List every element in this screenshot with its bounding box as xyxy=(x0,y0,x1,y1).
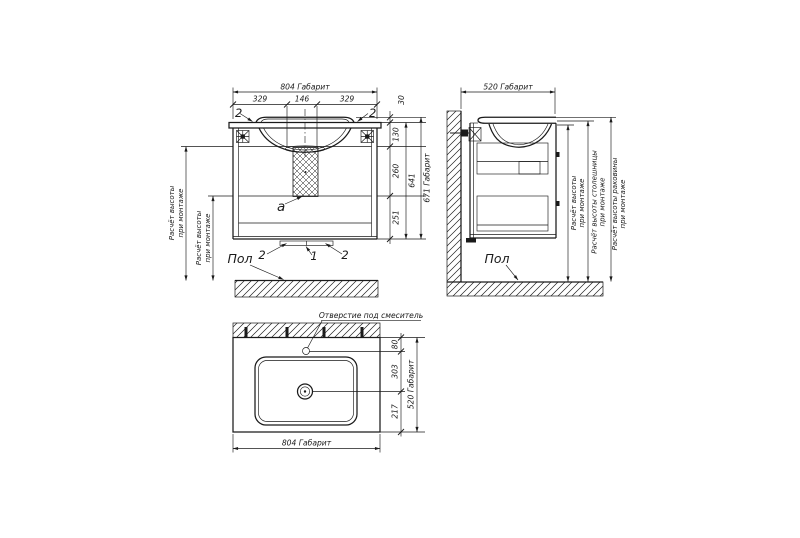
side-note-countertop-line1: Расчёт высоты столешницы xyxy=(591,150,599,254)
front-dim-center: 146 xyxy=(295,95,310,104)
basin-side-profile xyxy=(489,124,552,147)
front-callout-rail-right: 2 xyxy=(341,248,348,262)
upper-drawer xyxy=(477,143,548,174)
front-dim-left: 329 xyxy=(253,95,268,104)
front-view: 804 Габарит 329 146 329 2 2 xyxy=(168,83,432,298)
drawer-slide-tab xyxy=(556,152,560,157)
side-floor-hatch xyxy=(447,282,603,296)
front-dim-width: 804 Габарит xyxy=(280,83,330,92)
plan-dim-depth: 520 Габарит xyxy=(407,359,416,409)
side-dim-depth: 520 Габарит xyxy=(483,83,533,92)
front-label-siphon: a xyxy=(277,199,285,215)
vanity-drawing-svg: 804 Габарит 329 146 329 2 2 xyxy=(0,0,800,538)
front-dim-rim-height: 30 xyxy=(397,95,406,105)
side-note-height-line2: при монтаже xyxy=(578,179,586,228)
siphon-area xyxy=(293,148,318,197)
front-dim-body-height: 641 xyxy=(408,173,417,188)
wall-fixing-mark xyxy=(323,327,326,338)
front-note-mount-1-line2: при монтаже xyxy=(177,189,185,238)
side-note-basin-line2: при монтаже xyxy=(619,180,627,229)
plan-dim-drain-offset: 303 xyxy=(391,364,400,379)
front-callout-rail-center: 1 xyxy=(310,249,317,263)
technical-drawing-page: 804 Габарит 329 146 329 2 2 xyxy=(0,0,800,538)
mounting-rail xyxy=(280,241,333,246)
faucet-hole xyxy=(303,348,310,355)
side-note-basin-line1: Расчёт высоты раковины xyxy=(611,157,619,250)
side-cabinet-outline xyxy=(450,117,560,242)
front-callout-rail-left: 2 xyxy=(258,248,265,262)
front-label-floor: Пол xyxy=(227,251,252,266)
wall-fixing-mark xyxy=(286,327,289,338)
plan-dim-width: 804 Габарит xyxy=(282,439,332,448)
front-dim-right: 329 xyxy=(340,95,355,104)
side-label-floor: Пол xyxy=(484,251,509,266)
side-view: 520 Габарит Расчёт высоты при монтаже Ра… xyxy=(447,83,627,297)
wall-fixing-mark xyxy=(361,327,364,338)
front-callout-hinge-right: 2 xyxy=(369,106,376,120)
drawer-slide-tab xyxy=(556,201,560,206)
front-dim-top-section: 130 xyxy=(392,127,401,142)
front-callout-hinge-left: 2 xyxy=(235,106,242,120)
front-dim-bottom-section: 251 xyxy=(392,210,401,225)
front-floor-hatch xyxy=(235,281,378,298)
plan-dim-front-offset: 217 xyxy=(391,404,400,419)
front-note-mount-2-line1: Расчёт высоты xyxy=(195,210,203,265)
lower-drawer xyxy=(477,196,548,231)
wall-fixing-mark xyxy=(245,327,248,338)
side-note-countertop-line2: при монтаже xyxy=(599,178,607,227)
hinge-fastener-icon xyxy=(361,131,374,143)
front-note-mount-2-line2: при монтаже xyxy=(204,214,212,263)
countertop-side xyxy=(478,117,556,123)
front-dim-total-height: 671 Габарит xyxy=(423,153,432,203)
front-note-mount-1-line1: Расчёт высоты xyxy=(168,185,176,240)
front-dim-mid-section: 260 xyxy=(392,164,401,179)
plan-view: Отверстие под смеситель 80 303 217 520 Г… xyxy=(233,311,425,452)
cabinet-foot xyxy=(466,238,476,243)
hinge-fastener-icon xyxy=(237,131,250,143)
plan-note-faucet: Отверстие под смеситель xyxy=(319,311,423,320)
plan-wall-hatch xyxy=(233,323,380,338)
side-dimensions: 520 Габарит Расчёт высоты при монтаже Ра… xyxy=(461,83,627,282)
side-note-height-line1: Расчёт высоты xyxy=(570,175,578,230)
plan-dim-faucet-offset: 80 xyxy=(391,340,400,350)
side-wall-hatch xyxy=(447,111,461,282)
drain-hole xyxy=(298,384,313,399)
